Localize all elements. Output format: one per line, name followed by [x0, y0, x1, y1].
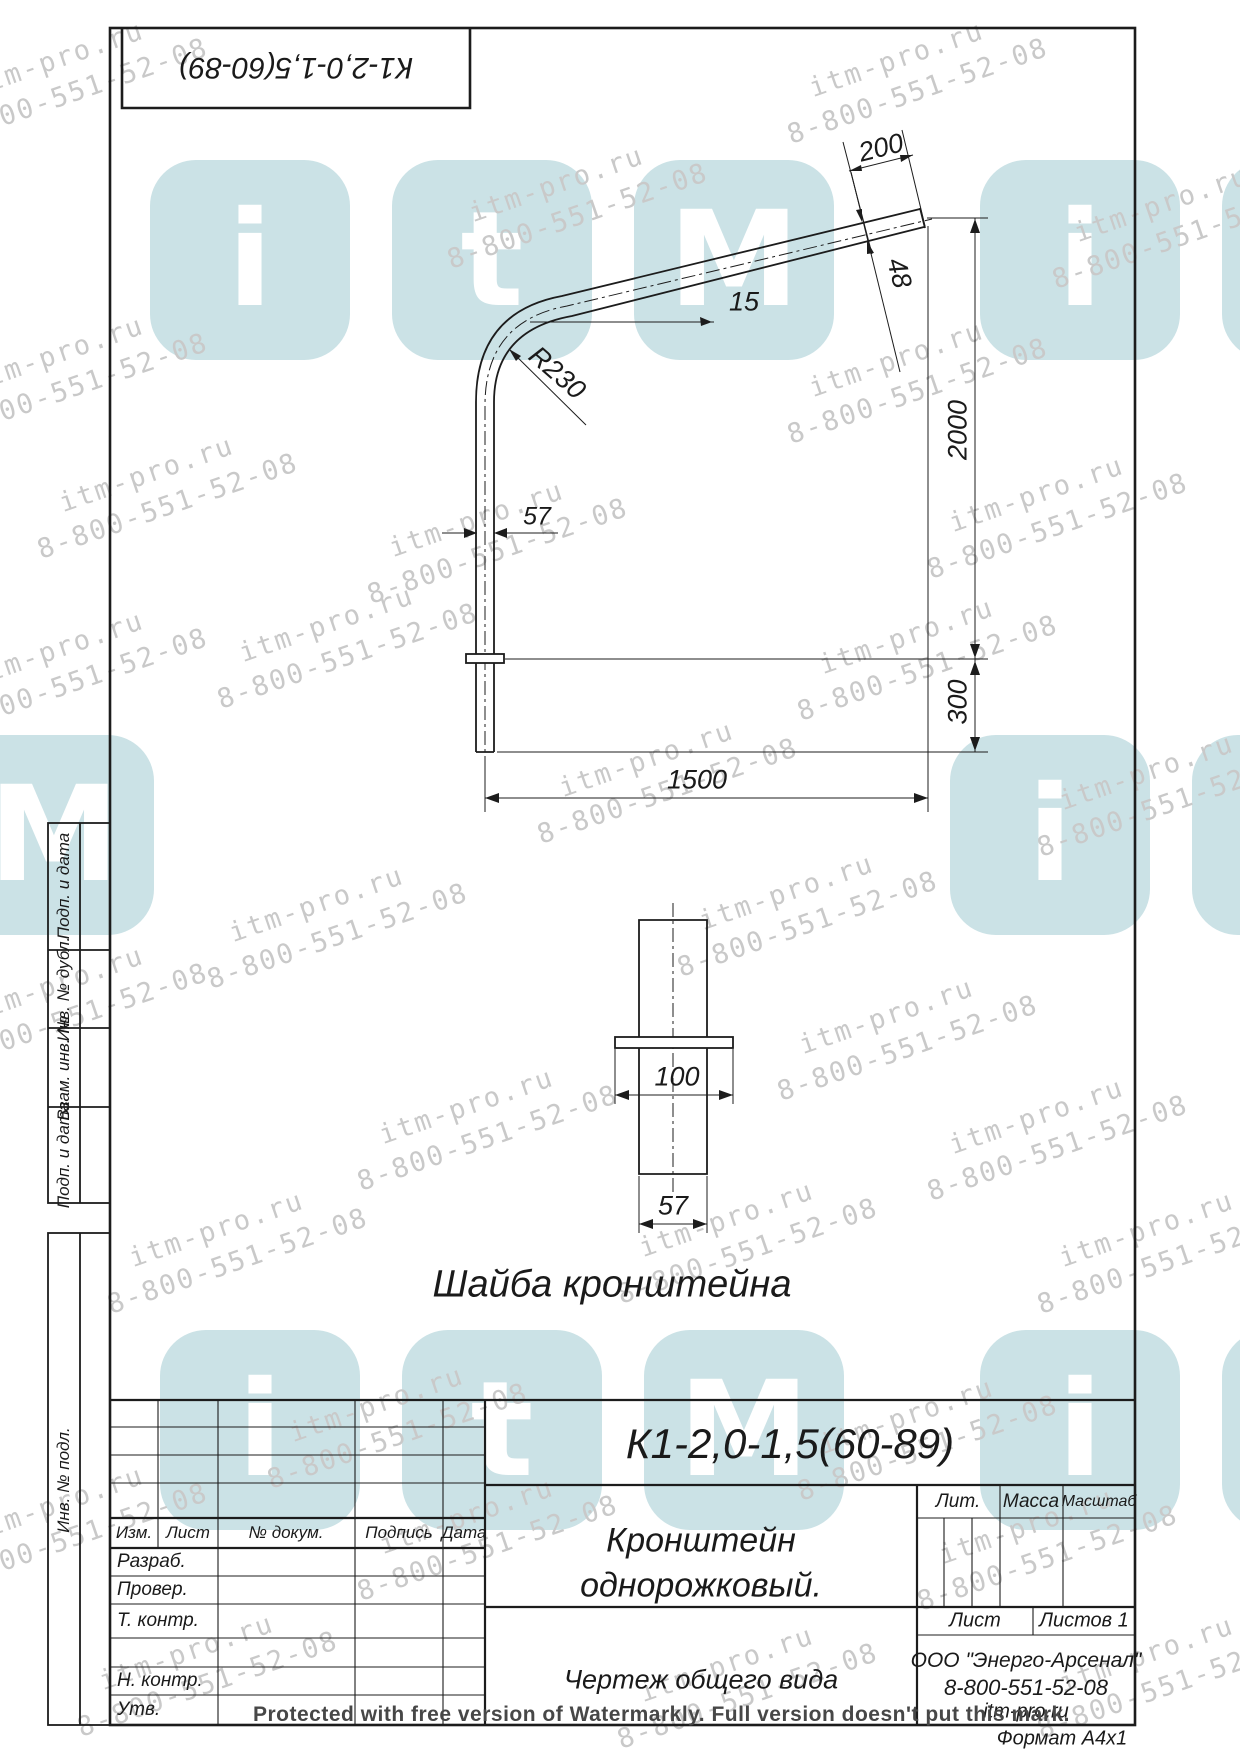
header-doc-num: № докум. — [249, 1523, 324, 1543]
header-scale: Масштаб — [1062, 1493, 1137, 1511]
sidebar-label-podp-data-2: Подп. и дата — [54, 1102, 74, 1208]
dim-bend-radius: R230 — [522, 340, 591, 406]
sidebar-label-podp-data-1: Подп. и дата — [54, 833, 74, 939]
row-n-contr: Н. контр. — [117, 1670, 203, 1692]
company-name: ООО "Энерго-Арсенал" — [911, 1649, 1142, 1673]
dim-washer-tube-diameter: 57 — [658, 1191, 688, 1222]
title-name-line2: однорожковый. — [580, 1567, 822, 1606]
header-list: Лист — [166, 1523, 210, 1543]
dim-embed-depth: 300 — [943, 679, 974, 724]
text-layer: К1-2,0-1,5(60-89) 200 48 15 R230 57 2000… — [0, 0, 1240, 1755]
dim-arm-end-length: 200 — [855, 128, 906, 169]
title-name-line1: Кронштейн — [606, 1522, 796, 1561]
dim-arm-end-diameter: 48 — [880, 254, 918, 291]
dim-height-to-end: 2000 — [943, 400, 974, 460]
row-t-contr: Т. контр. — [117, 1610, 199, 1632]
sidebar-label-inv-podl: Инв. № подл. — [54, 1427, 74, 1533]
company-phone: 8-800-551-52-08 — [944, 1675, 1108, 1701]
row-utv: Утв. — [117, 1699, 160, 1721]
title-code: К1-2,0-1,5(60-89) — [626, 1420, 954, 1468]
washer-view-label: Шайба кронштейна — [433, 1264, 792, 1307]
header-sign: Подпись — [365, 1523, 432, 1543]
header-sheets: Листов 1 — [1039, 1610, 1129, 1633]
drawing-page: itMitMitMitMitMitMitm-pro.ru8-800-551-52… — [0, 0, 1240, 1755]
dim-tube-diameter: 57 — [523, 503, 551, 532]
corner-stamp-code: К1-2,0-1,5(60-89) — [179, 50, 413, 84]
dim-washer-flange-width: 100 — [654, 1062, 699, 1093]
header-lit: Лит. — [936, 1491, 981, 1513]
row-razrab: Разраб. — [117, 1551, 186, 1573]
format-label: Формат А4х1 — [997, 1728, 1128, 1751]
header-date: Дата — [442, 1523, 487, 1543]
header-mass: Масса — [1003, 1491, 1059, 1513]
row-prover: Провер. — [117, 1579, 188, 1601]
protected-watermark-line: Protected with free version of Watermark… — [253, 1703, 1070, 1727]
header-izm: Изм. — [116, 1523, 152, 1543]
doc-type-label: Чертеж общего вида — [564, 1665, 838, 1696]
header-sheet: Лист — [949, 1610, 1001, 1633]
dim-arm-reach: 1500 — [667, 765, 727, 796]
dim-arm-angle: 15 — [729, 287, 759, 318]
